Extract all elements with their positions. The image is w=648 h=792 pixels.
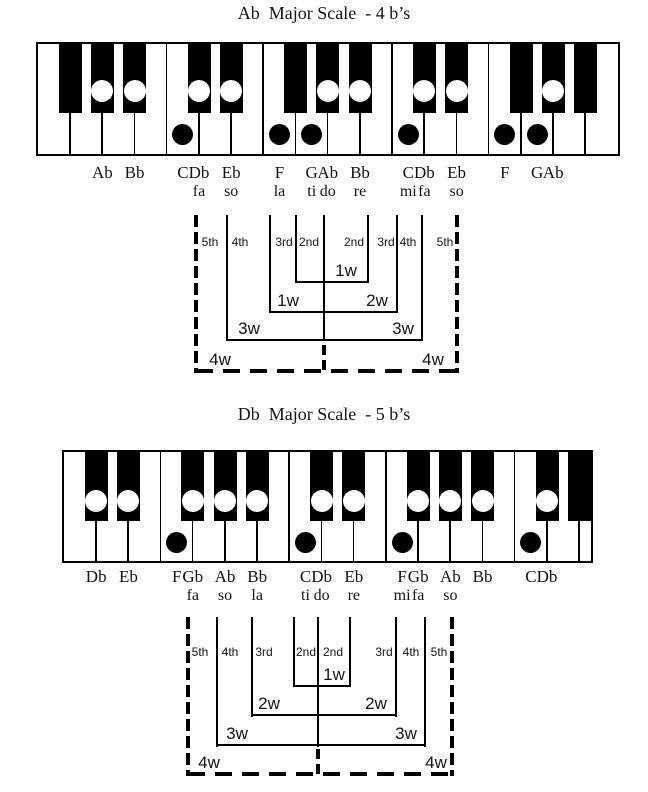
white-key-divider [288, 452, 290, 561]
step-count-label-3w: 3w [395, 725, 417, 742]
solfege-label-fa: fa [187, 588, 199, 604]
note-label-Db: Db [311, 568, 332, 585]
solfege-label-ti: ti [301, 588, 310, 604]
diagram-title-db-major: Db Major Scale - 5 b’s [0, 405, 648, 423]
scale-circle-marker-Gb [182, 490, 204, 512]
black-key-Eb [117, 452, 140, 521]
black-key-Bb [246, 452, 269, 521]
step-count-label-4w: 4w [425, 754, 447, 771]
scale-dot-marker-C [295, 532, 316, 553]
step-count-label-3w: 3w [226, 725, 248, 742]
worksheet-page: Ab Major Scale - 4 b’s CFlaGtiCmiFGAbBbD… [0, 0, 648, 792]
step-count-label-4w: 4w [198, 754, 220, 771]
solfege-label-do: do [314, 588, 330, 604]
scale-circle-marker-Bb [246, 490, 268, 512]
scale-circle-marker-Db [311, 490, 333, 512]
solfege-label-la: la [251, 588, 263, 604]
black-key-Gb [181, 452, 204, 521]
black-key-Db [85, 452, 108, 521]
interval-vertical [251, 617, 253, 717]
interval-vertical [293, 617, 295, 687]
step-count-label-2w: 2w [258, 695, 280, 712]
scale-circle-marker-Ab [439, 490, 461, 512]
scale-circle-marker-Bb [472, 490, 494, 512]
step-count-label-2w: 2w [365, 695, 387, 712]
scale-circle-marker-Gb [407, 490, 429, 512]
white-key-divider [385, 452, 387, 561]
interval-name-label-4th: 4th [403, 646, 420, 658]
black-key-Eb [568, 452, 591, 521]
interval-name-label-5th: 5th [192, 646, 209, 658]
interval-name-label-2nd: 2nd [323, 646, 343, 658]
solfege-label-so: so [218, 588, 232, 604]
solfege-label-so: so [443, 588, 457, 604]
scale-dot-marker-F [166, 532, 187, 553]
interval-vertical [395, 617, 397, 717]
note-label-C: C [300, 568, 311, 585]
note-label-Eb: Eb [119, 568, 138, 585]
interval-dashed-vertical [186, 617, 190, 776]
scale-dot-marker-C [520, 532, 541, 553]
diagram-section-db-major: Db Major Scale - 5 b’s FCtiFmiCDbEbGbfaA… [0, 0, 648, 792]
white-key-divider [160, 452, 162, 561]
interval-vertical [349, 617, 351, 687]
interval-bracket [252, 714, 397, 716]
note-label-C: C [525, 568, 536, 585]
scale-circle-marker-Eb [343, 490, 365, 512]
interval-name-label-2nd: 2nd [296, 646, 316, 658]
scale-circle-marker-Db [85, 490, 107, 512]
interval-name-label-4th: 4th [222, 646, 239, 658]
interval-name-label-5th: 5th [431, 646, 448, 658]
solfege-label-mi: mi [394, 588, 411, 604]
note-label-Ab: Ab [440, 568, 461, 585]
scale-circle-marker-Eb [117, 490, 139, 512]
interval-dashed-vertical [450, 617, 454, 776]
scale-circle-marker-Ab [214, 490, 236, 512]
interval-bracket [294, 685, 351, 687]
interval-vertical [424, 617, 426, 747]
scale-dot-marker-F [392, 532, 413, 553]
black-key-Eb [342, 452, 365, 521]
note-label-Eb: Eb [344, 568, 363, 585]
keyboard-db-major [62, 450, 593, 563]
note-label-Db: Db [537, 568, 558, 585]
note-label-Gb: Gb [408, 568, 429, 585]
black-key-Gb [407, 452, 430, 521]
interval-dashed-bracket [188, 772, 454, 776]
solfege-label-fa: fa [412, 588, 424, 604]
note-label-Gb: Gb [182, 568, 203, 585]
solfege-label-re: re [348, 588, 360, 604]
black-key-Ab [439, 452, 462, 521]
note-label-F: F [172, 568, 181, 585]
interval-bracket [217, 744, 426, 746]
black-key-Db [536, 452, 559, 521]
black-key-Ab [214, 452, 237, 521]
black-key-Db [310, 452, 333, 521]
scale-circle-marker-Db [536, 490, 558, 512]
note-label-Db: Db [86, 568, 107, 585]
interval-vertical [216, 617, 218, 747]
note-label-F: F [397, 568, 406, 585]
interval-center-vertical [317, 617, 319, 747]
interval-name-label-3rd: 3rd [375, 646, 392, 658]
note-label-Bb: Bb [247, 568, 267, 585]
note-label-Ab: Ab [215, 568, 236, 585]
step-count-label-1w: 1w [323, 666, 345, 683]
white-key-divider [514, 452, 516, 561]
note-label-Bb: Bb [473, 568, 493, 585]
black-key-Bb [471, 452, 494, 521]
interval-name-label-3rd: 3rd [255, 646, 272, 658]
